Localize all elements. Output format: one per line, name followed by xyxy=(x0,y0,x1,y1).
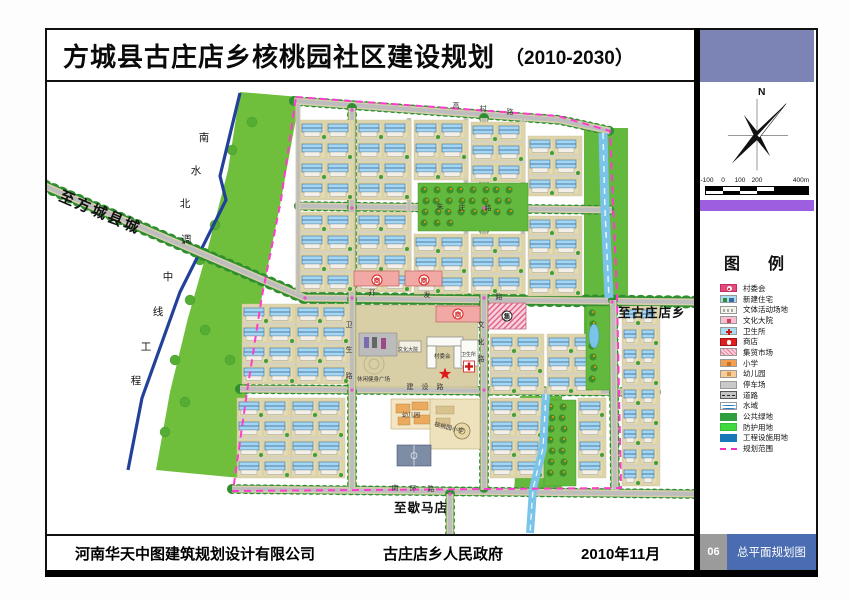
svg-text:文化大院: 文化大院 xyxy=(398,346,418,353)
shuiyu-swatch-icon xyxy=(720,402,737,410)
svg-text:开: 开 xyxy=(369,289,376,297)
svg-text:路: 路 xyxy=(507,107,514,116)
cunweihui-swatch-icon xyxy=(720,284,737,292)
legend-items: 村委会新建住宅文体活动场地文化大院卫生所商店集贸市场小学幼儿园停车场道路水域公共… xyxy=(700,283,814,454)
north-label: N xyxy=(758,87,765,98)
svg-text:路: 路 xyxy=(478,354,485,363)
map-area: 商商商集至方城县城南水北调中线工程至古庄店乡至歇马店高村路朱庄路开发路建设路南环… xyxy=(47,82,694,534)
legend-item-label: 商店 xyxy=(743,336,758,347)
svg-text:环: 环 xyxy=(410,485,417,493)
legend-item-label: 规划范围 xyxy=(743,443,773,454)
legend-item-lvdi: 公共绿地 xyxy=(700,411,814,422)
svg-text:化: 化 xyxy=(478,337,485,346)
svg-text:商: 商 xyxy=(374,275,381,284)
svg-text:至歇马店: 至歇马店 xyxy=(394,500,448,515)
svg-text:至古庄店乡: 至古庄店乡 xyxy=(618,305,686,320)
legend-item-label: 防护用地 xyxy=(743,422,773,433)
svg-text:路: 路 xyxy=(346,371,353,380)
scale-tick: 0 xyxy=(721,177,725,184)
page-title: 方城县古庄店乡核桃园社区建设规划 xyxy=(63,37,495,74)
legend-item-cunweihui: 村委会 xyxy=(700,283,814,294)
tingche-swatch-icon xyxy=(720,381,737,389)
svg-text:村委会: 村委会 xyxy=(434,352,451,360)
shangdian-swatch-icon xyxy=(720,338,737,346)
svg-text:发: 发 xyxy=(424,290,431,299)
svg-text:调: 调 xyxy=(181,234,192,246)
plan-date: 2010年11月 xyxy=(581,543,660,564)
svg-text:程: 程 xyxy=(131,375,142,387)
svg-text:生: 生 xyxy=(346,345,353,354)
svg-text:南: 南 xyxy=(392,483,399,492)
plan-period: （2010-2030） xyxy=(505,40,634,70)
legend-item-xiaoxue: 小学 xyxy=(700,358,814,369)
legend-item-label: 村委会 xyxy=(743,283,766,294)
legend-title: 图 例 xyxy=(700,250,814,274)
village-committee-building xyxy=(427,337,463,346)
legend-item-shuiyu: 水域 xyxy=(700,401,814,412)
legend-item-label: 集贸市场 xyxy=(743,347,773,358)
legend-item-label: 水域 xyxy=(743,400,758,411)
svg-text:商: 商 xyxy=(455,309,462,318)
legend-item-label: 公共绿地 xyxy=(743,411,773,422)
svg-text:路: 路 xyxy=(496,292,503,301)
legend-item-label: 道路 xyxy=(743,390,758,401)
compass-box: N xyxy=(700,82,814,176)
daolu-swatch-icon xyxy=(720,391,737,399)
svg-text:路: 路 xyxy=(485,203,492,212)
legend-item-label: 卫生所 xyxy=(743,326,766,337)
svg-text:建: 建 xyxy=(407,382,414,391)
legend-item-label: 工程设施用地 xyxy=(743,432,788,443)
scale-segments xyxy=(705,186,809,195)
xinjian-swatch-icon xyxy=(720,295,737,303)
lvdi-swatch-icon xyxy=(720,413,737,421)
svg-text:幼儿园: 幼儿园 xyxy=(402,411,420,419)
fanghu-swatch-icon xyxy=(720,423,737,431)
legend-item-wenti: 文体活动场地 xyxy=(700,304,814,315)
legend-item-tingche: 停车场 xyxy=(700,379,814,390)
scale-tick: 100 xyxy=(735,177,746,184)
legend-item-label: 幼儿园 xyxy=(743,368,766,379)
legend-item-label: 新建住宅 xyxy=(743,294,773,305)
youeryuan-swatch-icon xyxy=(720,370,737,378)
sidebar-purple-rule xyxy=(700,200,814,211)
svg-text:文: 文 xyxy=(478,320,485,329)
svg-text:路: 路 xyxy=(437,382,444,391)
svg-text:水: 水 xyxy=(191,165,202,177)
svg-text:村: 村 xyxy=(480,104,487,113)
site-plan-map: 商商商集至方城县城南水北调中线工程至古庄店乡至歇马店高村路朱庄路开发路建设路南环… xyxy=(47,82,694,534)
sidebar-header-block xyxy=(700,30,814,82)
svg-text:北: 北 xyxy=(180,198,191,210)
legend-item-xinjian: 新建住宅 xyxy=(700,294,814,305)
svg-text:卫生所: 卫生所 xyxy=(461,351,476,358)
legend-item-label: 小学 xyxy=(743,358,758,369)
xiaoxue-swatch-icon xyxy=(720,359,737,367)
legend-item-label: 文体活动场地 xyxy=(743,304,788,315)
svg-text:卫: 卫 xyxy=(346,321,353,329)
svg-text:集: 集 xyxy=(503,311,511,320)
svg-text:路: 路 xyxy=(428,484,435,493)
svg-text:线: 线 xyxy=(153,305,164,318)
design-company: 河南华天中图建筑规划设计有限公司 xyxy=(75,543,315,564)
guihua-swatch-icon xyxy=(720,445,737,453)
bottom-border-bar xyxy=(45,570,818,577)
svg-text:庄: 庄 xyxy=(459,203,466,212)
legend-item-wenhua: 文化大院 xyxy=(700,315,814,326)
scale-tick: 200 xyxy=(752,177,763,184)
legend-item-jimao: 集贸市场 xyxy=(700,347,814,358)
jimao-swatch-icon xyxy=(720,348,737,356)
legend-item-gongcheng: 工程设施用地 xyxy=(700,433,814,444)
legend-item-daolu: 道路 xyxy=(700,390,814,401)
legend-item-label: 文化大院 xyxy=(743,315,773,326)
legend-item-guihua: 规划范围 xyxy=(700,443,814,454)
legend-item-weisheng: 卫生所 xyxy=(700,326,814,337)
sheet-name-badge: 总平面规划图 xyxy=(727,534,816,570)
government: 古庄店乡人民政府 xyxy=(383,543,503,564)
svg-text:商: 商 xyxy=(421,275,428,284)
svg-text:朱: 朱 xyxy=(437,202,444,211)
svg-text:中: 中 xyxy=(163,270,174,283)
scale-tick-labels: -1000100200400m xyxy=(705,177,809,186)
gongcheng-swatch-icon xyxy=(720,434,737,442)
wenti-swatch-icon xyxy=(720,306,737,314)
legend-item-fanghu: 防护用地 xyxy=(700,422,814,433)
svg-text:工: 工 xyxy=(141,341,152,353)
legend-item-label: 停车场 xyxy=(743,379,766,390)
legend-item-youeryuan: 幼儿园 xyxy=(700,369,814,380)
legend: 图 例 村委会新建住宅文体活动场地文化大院卫生所商店集贸市场小学幼儿园停车场道路… xyxy=(700,250,814,454)
legend-item-shangdian: 商店 xyxy=(700,336,814,347)
title-bar: 方城县古庄店乡核桃园社区建设规划 （2010-2030） xyxy=(47,30,694,82)
scale-tick: -100 xyxy=(700,177,713,184)
svg-text:南: 南 xyxy=(199,131,210,144)
sheet-number-badge: 06 xyxy=(700,534,727,570)
north-arrow-icon: N xyxy=(712,82,802,176)
svg-text:休闲健身广场: 休闲健身广场 xyxy=(357,375,391,383)
scale-tick: 400m xyxy=(793,177,809,184)
wenhua-swatch-icon xyxy=(720,316,737,324)
weisheng-swatch-icon xyxy=(720,327,737,335)
plan-sheet: 方城县古庄店乡核桃园社区建设规划 （2010-2030） 商商商集至方城县城南水… xyxy=(0,0,850,600)
svg-text:高: 高 xyxy=(453,101,460,110)
svg-text:设: 设 xyxy=(422,382,429,391)
credits-bar: 河南华天中图建筑规划设计有限公司 古庄店乡人民政府 2010年11月 xyxy=(47,534,694,570)
scale-bar: -1000100200400m xyxy=(705,177,809,199)
